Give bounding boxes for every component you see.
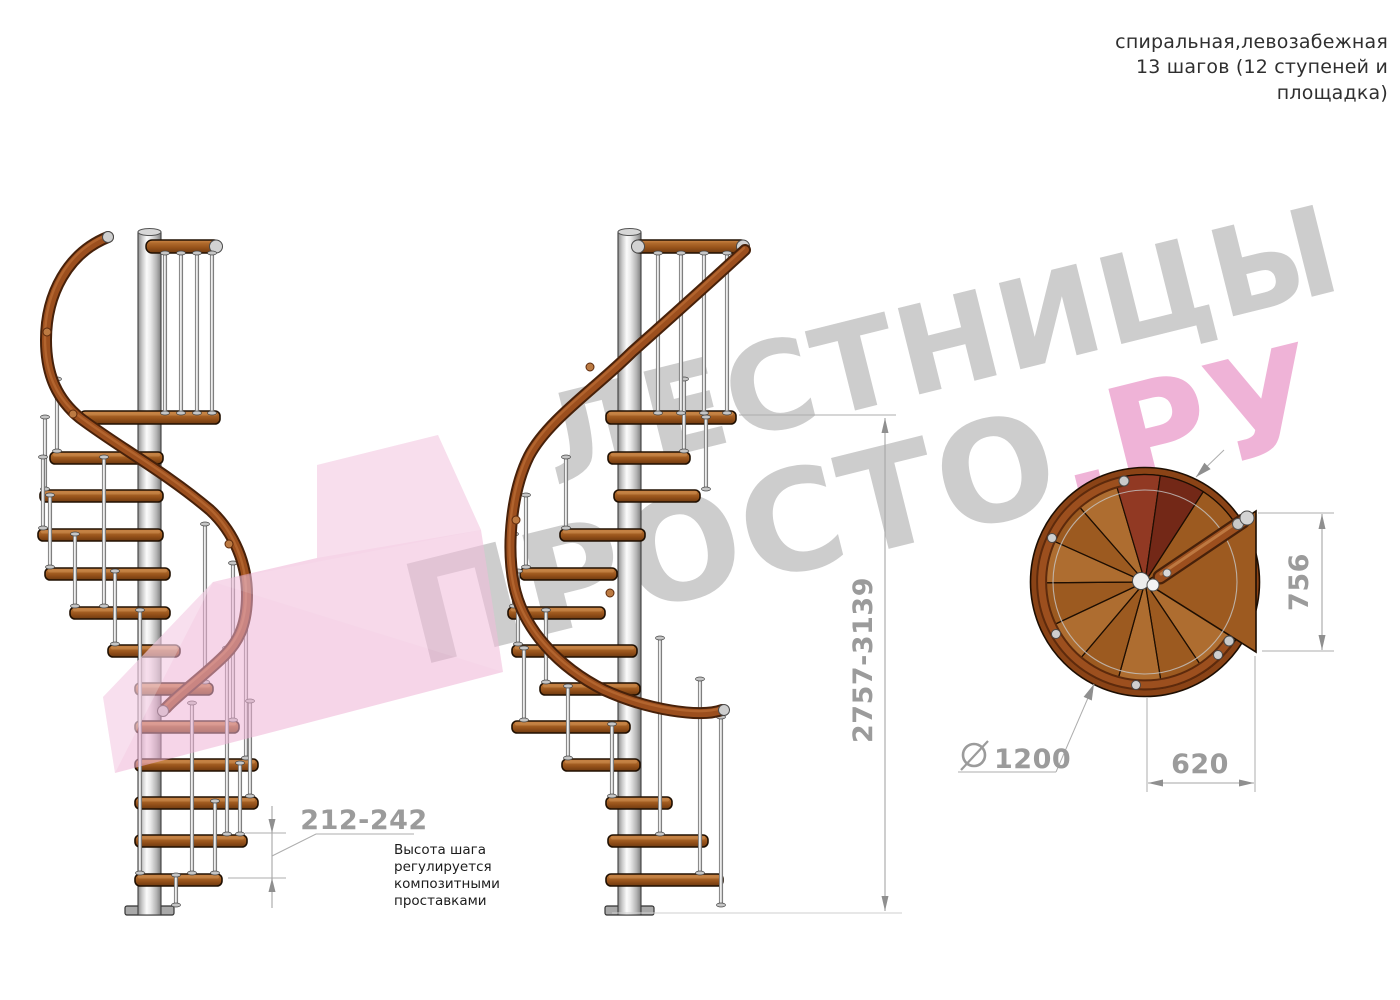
handrail-end-cap [103,232,114,243]
baluster [195,252,199,414]
tread-highlight [617,492,697,495]
tread-highlight [138,799,255,802]
baluster-foot [514,642,523,646]
baluster [102,456,106,607]
baluster [238,762,242,835]
baluster-foot [193,411,202,415]
title-line-3: площадка) [1115,81,1388,106]
baluster-collar [656,636,665,640]
baluster-foot [702,487,711,491]
baluster-collar [696,677,705,681]
baluster-collar [177,251,186,255]
baluster-foot [680,449,689,453]
baluster-foot [39,526,48,530]
baluster [174,874,178,906]
drawing-page: ЛЕСТНИЦЫ ПРОСТО.РУ [0,0,1400,1000]
baluster [213,800,217,874]
baluster [524,494,528,568]
tread-highlight [609,876,720,879]
baluster-collar [193,251,202,255]
baluster-collar [208,251,217,255]
baluster-foot [246,794,255,798]
baluster [719,716,723,906]
baluster-foot [520,718,529,722]
baluster-collar [111,569,120,573]
baluster-collar [700,251,709,255]
baluster-foot [136,871,145,875]
dim-step-height-label: 212-242 [300,805,427,836]
baluster [73,533,77,607]
dim-diameter-label: 1200 [994,744,1071,775]
baluster-foot [677,411,686,415]
center-pole [618,232,641,915]
baluster-foot [208,411,217,415]
baluster [702,252,706,414]
handrail-joint [69,410,77,418]
baluster-foot [223,832,232,836]
tread-highlight [611,454,687,457]
dim-plan-depth-label: 756 [1284,553,1315,611]
tread-highlight [523,570,614,573]
baluster-collar [520,646,529,650]
tread-highlight [73,609,167,612]
tread-highlight [43,492,160,495]
baluster-foot [188,871,197,875]
baluster [566,685,570,759]
pole-cap [138,229,161,236]
baluster-foot [656,832,665,836]
baluster-foot [700,411,709,415]
baluster-foot [542,680,551,684]
handrail-joint [586,363,594,371]
baluster [113,570,117,645]
baluster-foot [71,604,80,608]
tread-highlight [41,531,160,534]
baluster [679,252,683,414]
baluster-collar [41,415,50,419]
baluster-collar [71,532,80,536]
baluster-collar [723,251,732,255]
baluster-foot [172,903,181,907]
tread-highlight [609,413,733,416]
baluster-foot [564,756,573,760]
tread-highlight [611,837,705,840]
baluster-collar [702,415,711,419]
baluster-collar [654,251,663,255]
baluster-collar [522,493,531,497]
title-line-1: спиральная,левозабежная [1115,30,1388,55]
baluster [658,637,662,835]
tread-highlight [565,761,637,764]
baluster-foot [111,642,120,646]
baluster-collar [46,493,55,497]
baluster-foot [717,903,726,907]
handrail-joint [512,516,520,524]
dim-plan-width-label: 620 [1171,749,1229,780]
step-height-note: Высота шага регулируется композитными пр… [394,842,500,910]
staircase-drawing: ЛЕСТНИЦЫ ПРОСТО.РУ [0,0,1400,1000]
baluster-foot [211,871,220,875]
baluster-collar [136,608,145,612]
handrail-joint [43,328,51,336]
pole-cap [618,229,641,236]
baluster-collar [100,455,109,459]
baluster-foot [53,449,62,453]
baluster-foot [654,411,663,415]
baluster-collar [39,455,48,459]
handrail-joint [606,589,614,597]
rail-end-cap [632,240,645,253]
baluster-foot [177,411,186,415]
baluster-foot [562,526,571,530]
tread-highlight [48,570,167,573]
baluster-foot [161,411,170,415]
tread-highlight [563,531,642,534]
baluster-foot [46,565,55,569]
dim-plan-depth: 756 [1258,513,1334,651]
baluster-foot [696,871,705,875]
baluster-foot [236,832,245,836]
baluster-foot [100,604,109,608]
logo-watermark [103,435,503,773]
baluster [610,723,614,797]
baluster [522,647,526,721]
title-caption: спиральная,левозабежная 13 шагов (12 сту… [1115,30,1388,106]
baluster [163,252,167,414]
baluster-collar [542,608,551,612]
baluster [210,252,214,414]
baluster-collar [677,251,686,255]
baluster-collar [236,761,245,765]
baluster-collar [608,722,617,726]
title-line-2: 13 шагов (12 ступеней и [1115,55,1388,80]
baluster-collar [211,799,220,803]
baluster-foot [522,565,531,569]
baluster-collar [564,684,573,688]
baluster [564,456,568,529]
baluster-collar [201,522,210,526]
baluster-foot [723,411,732,415]
baluster [179,252,183,414]
handrail-end-cap [719,705,730,716]
left-side-view [38,229,258,916]
baluster [41,456,45,529]
baluster-collar [172,873,181,877]
tread-highlight [515,647,634,650]
handrail-joint [225,540,233,548]
baluster [704,416,708,490]
baluster-collar [161,251,170,255]
baluster [725,252,729,414]
top-plan-view [1031,468,1260,697]
baluster-collar [562,455,571,459]
baluster [48,494,52,568]
dim-total-height-label: 2757-3139 [848,577,879,743]
baluster-foot [608,794,617,798]
